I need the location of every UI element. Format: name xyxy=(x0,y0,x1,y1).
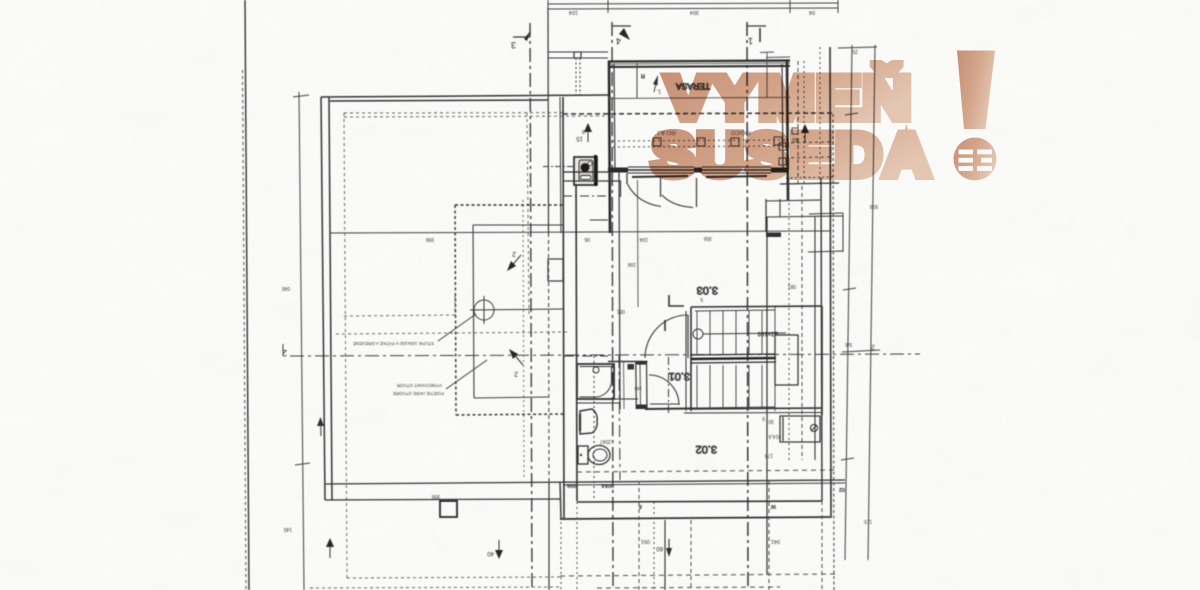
svg-text:SUSEDA: SUSEDA xyxy=(652,122,932,189)
